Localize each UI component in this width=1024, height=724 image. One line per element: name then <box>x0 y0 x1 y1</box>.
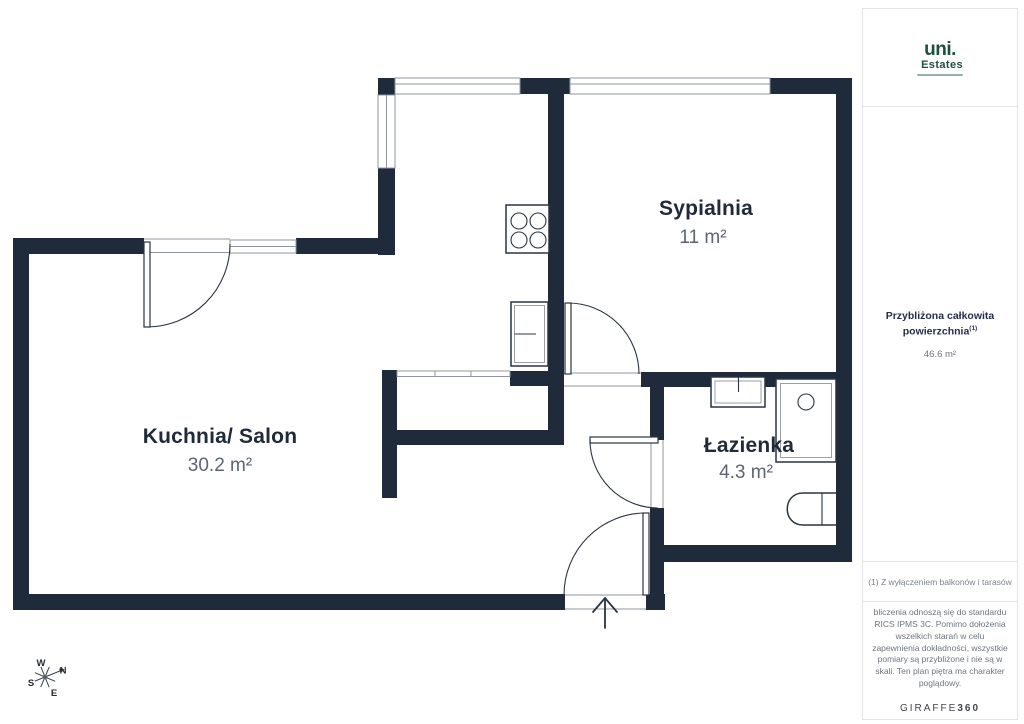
washbasin-icon <box>711 377 765 407</box>
window-icon <box>230 240 296 253</box>
compass-s-label: S <box>28 678 34 689</box>
bathroom-door-icon <box>590 437 658 508</box>
balcony-door-icon <box>144 242 230 327</box>
footnote-mark: (1) <box>969 325 977 332</box>
logo-sub-text: Estates <box>921 60 963 71</box>
logo-section: uni. Estates <box>863 9 1017 107</box>
total-area-heading-text: Przybliżona całkowita powierzchnia <box>886 310 995 338</box>
compass-n-label: N <box>60 666 67 677</box>
total-area-section: Przybliżona całkowita powierzchnia(1) 46… <box>863 107 1017 562</box>
total-area-value: 46.6 m² <box>924 349 956 360</box>
floor-plan: W N S E <box>0 0 862 724</box>
entrance-door-icon <box>564 513 649 595</box>
giraffe360-name: GIRAFFE <box>900 703 957 714</box>
giraffe360-logo: GIRAFFE360 <box>900 703 980 714</box>
room-label-lazienka: Łazienka <box>704 434 794 458</box>
floor-plan-page: W N S E Sypialnia 11 m² Kuchnia/ Salon 3… <box>0 0 1024 724</box>
logo-tagline-decoration <box>917 74 963 76</box>
toilet-icon <box>787 493 836 525</box>
room-area-kuchnia-salon: 30.2 m² <box>188 455 252 477</box>
compass-w-label: W <box>37 658 46 669</box>
compass-e-label: E <box>51 688 57 699</box>
compass-rose: W N S E <box>28 658 67 699</box>
wardrobe-counter <box>397 371 510 377</box>
room-area-lazienka: 4.3 m² <box>719 462 773 484</box>
disclaimer-text: bliczenia odnoszą się do standardu RICS … <box>872 607 1008 689</box>
entrance-arrow <box>593 598 617 628</box>
room-label-kuchnia-salon: Kuchnia/ Salon <box>143 425 298 449</box>
opening-lines <box>144 239 663 609</box>
giraffe360-suffix: 360 <box>957 703 980 714</box>
uni-estates-logo: uni. Estates <box>917 40 963 76</box>
window-icon <box>395 78 520 94</box>
info-sidebar: uni. Estates Przybliżona całkowita powie… <box>862 8 1018 720</box>
room-label-sypialnia: Sypialnia <box>659 197 753 221</box>
kitchen-sink-icon <box>511 302 548 366</box>
stove-icon <box>506 205 549 253</box>
footnote-section: (1) Z wyłączeniem balkonów i tarasów <box>863 562 1017 602</box>
window-icon <box>378 95 395 168</box>
room-area-sypialnia: 11 m² <box>679 227 726 249</box>
bedroom-door-icon <box>565 303 639 374</box>
disclaimer-section: bliczenia odnoszą się do standardu RICS … <box>863 602 1017 719</box>
window-icon <box>570 78 770 94</box>
footnote-text: (1) Z wyłączeniem balkonów i tarasów <box>867 577 1013 587</box>
walls <box>13 78 852 610</box>
logo-brand-text: uni. <box>924 40 956 59</box>
total-area-heading: Przybliżona całkowita powierzchnia(1) <box>880 309 1000 341</box>
